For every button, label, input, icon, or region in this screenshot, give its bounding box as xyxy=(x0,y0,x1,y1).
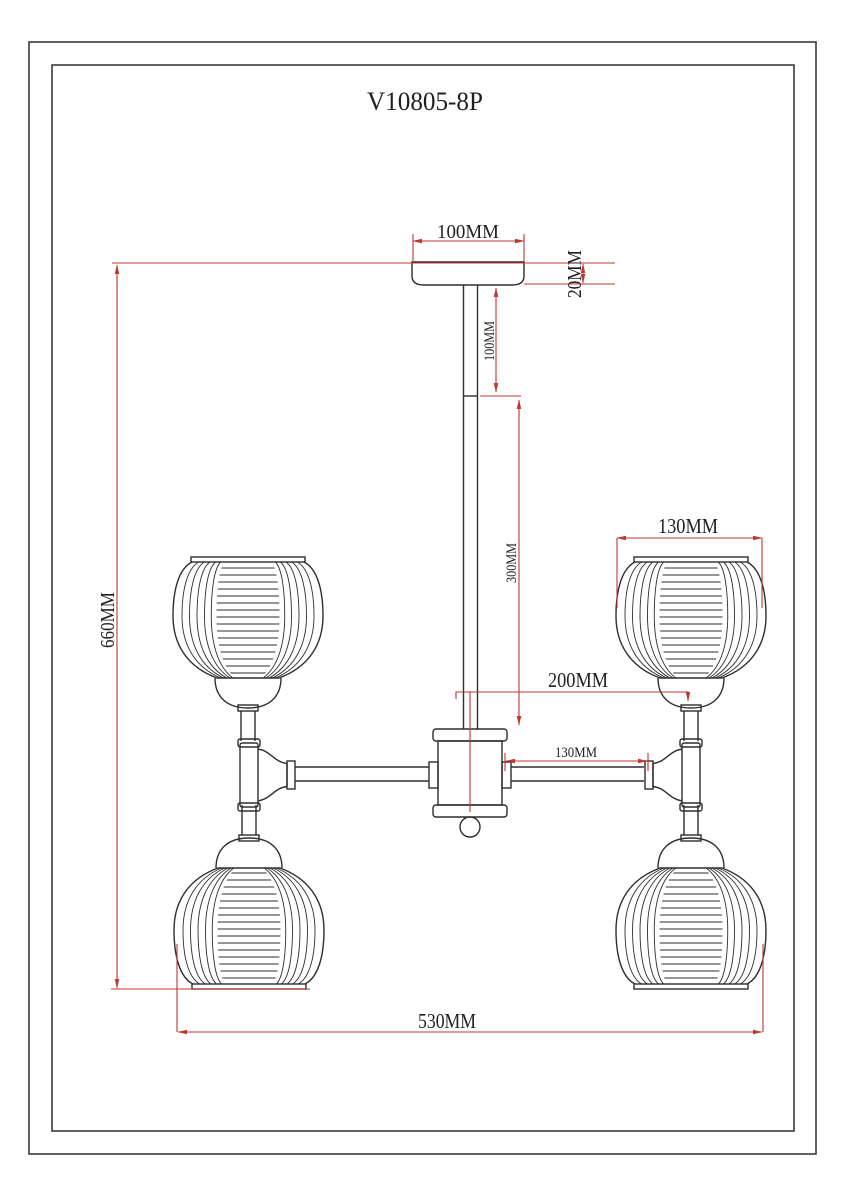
dim-label-rod-lower: 300MM xyxy=(504,543,520,583)
dim-rod-lower: 300MM xyxy=(504,400,520,725)
fixture-drawing xyxy=(173,262,766,989)
dim-overall-height: 660MM xyxy=(97,265,310,989)
outer-border xyxy=(29,42,816,1154)
dim-label-arm-segment: 130MM xyxy=(555,745,597,761)
down-rod xyxy=(464,285,478,729)
left-arm-tube xyxy=(295,767,429,781)
dim-label-canopy-height: 20MM xyxy=(564,250,586,298)
lamp-upper-right xyxy=(616,557,766,741)
hub-finial-ball xyxy=(460,817,480,837)
dim-canopy-height: 20MM xyxy=(112,250,615,298)
dim-label-overall-width: 530MM xyxy=(418,1009,476,1033)
page-title: V10805-8P xyxy=(367,87,483,116)
dim-label-rod-upper: 100MM xyxy=(482,321,498,361)
right-arm-tube xyxy=(511,767,644,781)
hub-left-nub xyxy=(429,762,438,788)
dim-rod-upper: 100MM xyxy=(480,288,521,396)
dim-label-canopy-width: 100MM xyxy=(437,221,499,243)
drawing-sheet: V10805-8P 100MM xyxy=(0,0,848,1200)
right-tjoint xyxy=(645,739,702,811)
dim-label-center-to-lamp: 200MM xyxy=(548,668,608,692)
dim-label-shade-diameter: 130MM xyxy=(658,514,718,538)
dimension-annotations: 100MM 20MM 100MM 300MM 200MM xyxy=(97,221,763,1033)
left-tjoint xyxy=(238,739,295,811)
ceiling-canopy xyxy=(412,262,524,285)
dim-center-to-lamp: 200MM xyxy=(456,668,688,812)
lamp-lower-right xyxy=(616,805,766,989)
lamp-upper-left xyxy=(173,557,323,741)
dim-canopy-width: 100MM xyxy=(413,221,524,262)
technical-drawing: V10805-8P 100MM xyxy=(0,0,848,1200)
lamp-lower-left xyxy=(174,805,324,989)
dim-label-overall-height: 660MM xyxy=(97,592,119,648)
hub-right-nub xyxy=(502,762,511,788)
dim-shade-diameter: 130MM xyxy=(617,514,762,608)
